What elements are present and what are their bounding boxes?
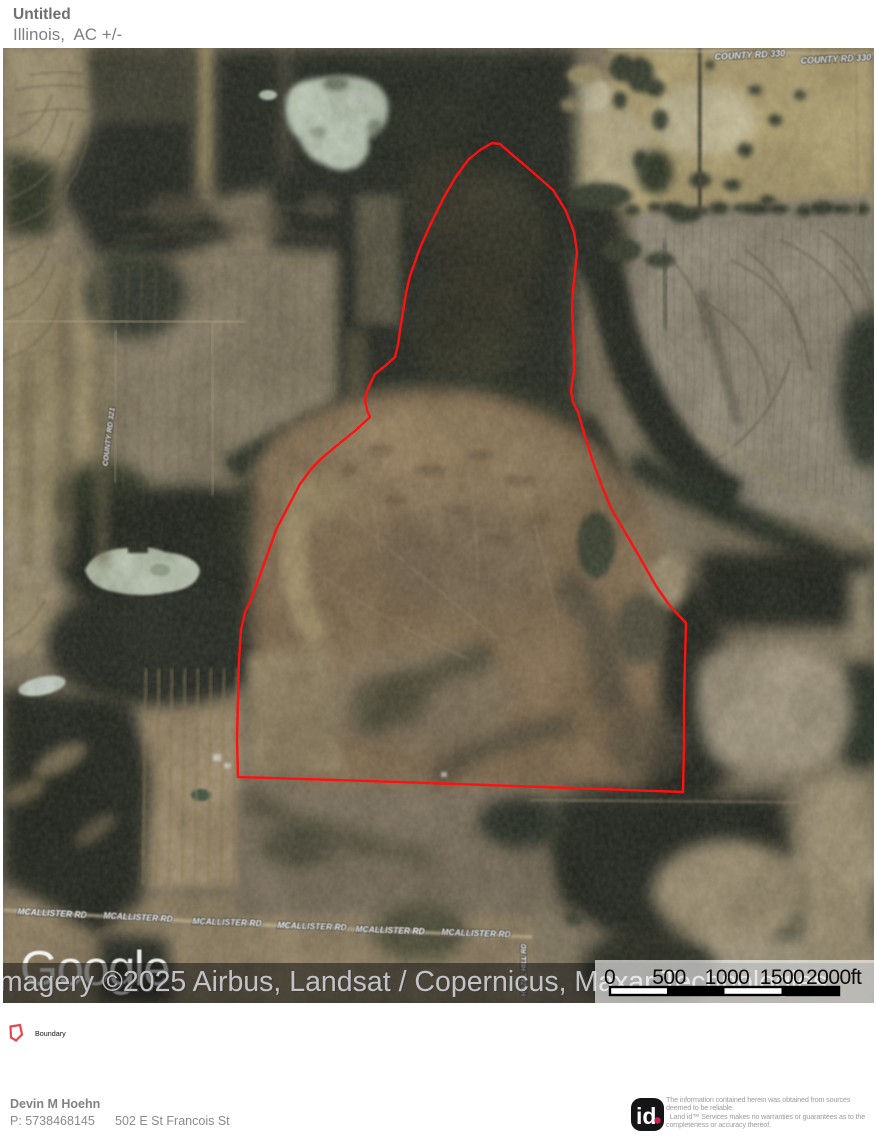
svg-text:Boundary: Boundary: [35, 1029, 66, 1038]
svg-text:0: 0: [604, 966, 615, 989]
svg-text:500: 500: [652, 966, 686, 989]
svg-text:2000ft: 2000ft: [806, 966, 862, 989]
svg-text:1000: 1000: [705, 966, 750, 989]
svg-text:1500: 1500: [760, 966, 805, 989]
svg-text:id: id: [636, 1103, 656, 1129]
